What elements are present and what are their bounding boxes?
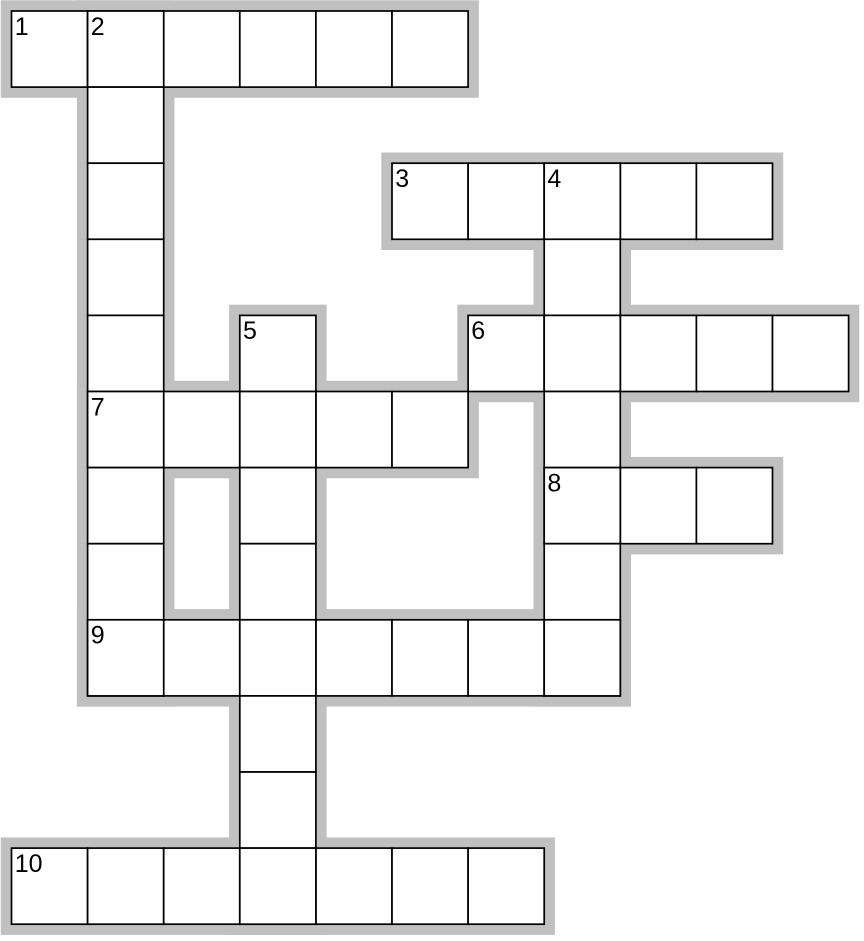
svg-text:9: 9: [91, 622, 105, 650]
svg-text:3: 3: [395, 165, 409, 193]
svg-text:2: 2: [91, 13, 105, 41]
svg-text:10: 10: [15, 850, 43, 878]
svg-text:8: 8: [547, 469, 561, 497]
svg-text:7: 7: [91, 393, 105, 421]
svg-text:6: 6: [471, 317, 485, 345]
svg-text:4: 4: [547, 165, 561, 193]
svg-text:1: 1: [15, 13, 29, 41]
svg-text:5: 5: [243, 317, 257, 345]
